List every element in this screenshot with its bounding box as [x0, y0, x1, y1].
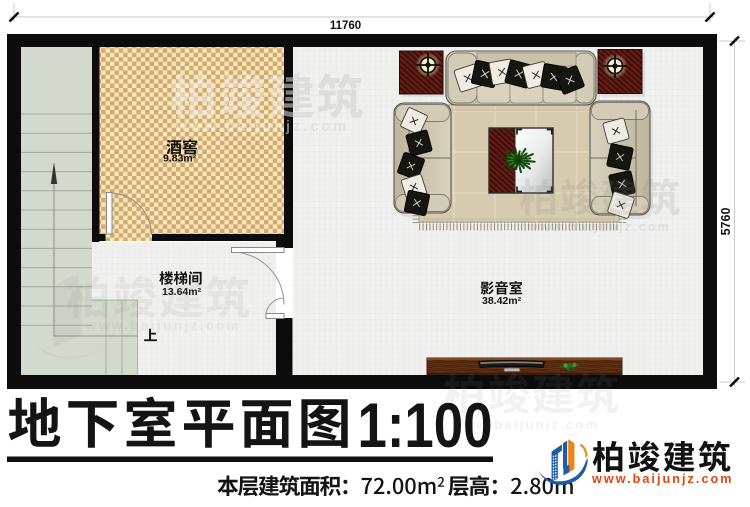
svg-text:9.83m²: 9.83m²: [163, 153, 197, 165]
svg-text:5760: 5760: [719, 208, 733, 236]
svg-text:1:100: 1:100: [358, 391, 493, 461]
svg-text:11760: 11760: [330, 20, 361, 32]
svg-text:38.42m²: 38.42m²: [482, 295, 522, 307]
svg-text:www.baijunjz.com: www.baijunjz.com: [591, 472, 734, 486]
svg-text:www.baijunjz.com: www.baijunjz.com: [527, 220, 671, 234]
svg-text:www.baijunjz.com: www.baijunjz.com: [85, 318, 241, 333]
